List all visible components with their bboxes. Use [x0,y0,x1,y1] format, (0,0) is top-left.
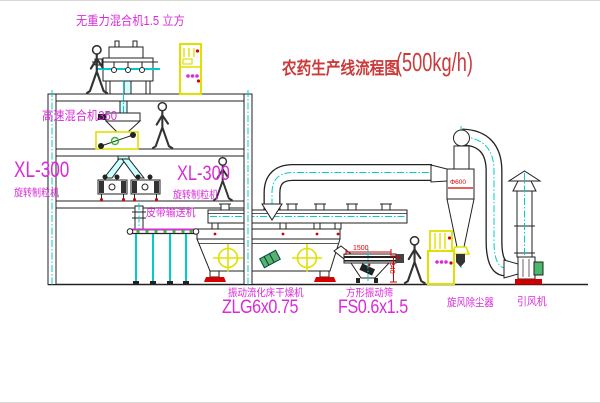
label-high-speed-mixer: 高速混合机350 [42,110,117,123]
label-granulator-right-model: XL-300 [177,163,230,184]
dryer-supports [204,271,336,282]
flow-diagram-canvas: 农药生产线流程图 (500kg/h) 无重力混合机1.5 立方 高速混合机350… [0,0,600,403]
bed-bolts [212,223,341,229]
label-granulator-left-model: XL-300 [14,159,69,181]
belt-conveyor [127,229,199,284]
dim-cyclone-diameter: Φ600 [450,180,466,187]
label-granulator-right-name: 旋转制粒机 [173,190,218,201]
fan-inlet-cone [504,260,518,278]
control-cabinet-right [428,231,454,284]
fan-base [515,279,542,285]
label-cyclone: 旋风除尘器 [447,298,494,309]
diagram-title: 农药生产线流程图 [282,54,399,79]
granulator-right [131,175,160,202]
person-ground [405,237,425,283]
label-sieve-model: FS0.6x1.5 [338,298,408,317]
label-belt-conveyor: 皮带输送机 [146,208,196,219]
discharge-valve-icon [456,254,465,262]
fan-motor-icon [534,262,543,275]
diagram-title-capacity: (500kg/h) [396,47,473,78]
label-fan: 引风机 [517,297,547,308]
granulator-left [98,175,127,202]
dim-sieve-length: 1500 [353,245,369,252]
dim-sieve-height: 340 [388,262,395,274]
label-gravity-mixer: 无重力混合机1.5 立方 [76,15,185,28]
control-cabinet-top [180,44,201,94]
label-dryer-model: ZLG6x0.75 [222,298,298,317]
label-granulator-left-name: 旋转制粒机 [14,188,59,199]
vibrating-sieve [344,249,404,283]
cyclone-inlet [431,165,447,182]
induced-draft-fan [504,257,543,285]
person-second-floor [153,103,172,148]
cyclone-outlet-elbow [454,130,470,146]
